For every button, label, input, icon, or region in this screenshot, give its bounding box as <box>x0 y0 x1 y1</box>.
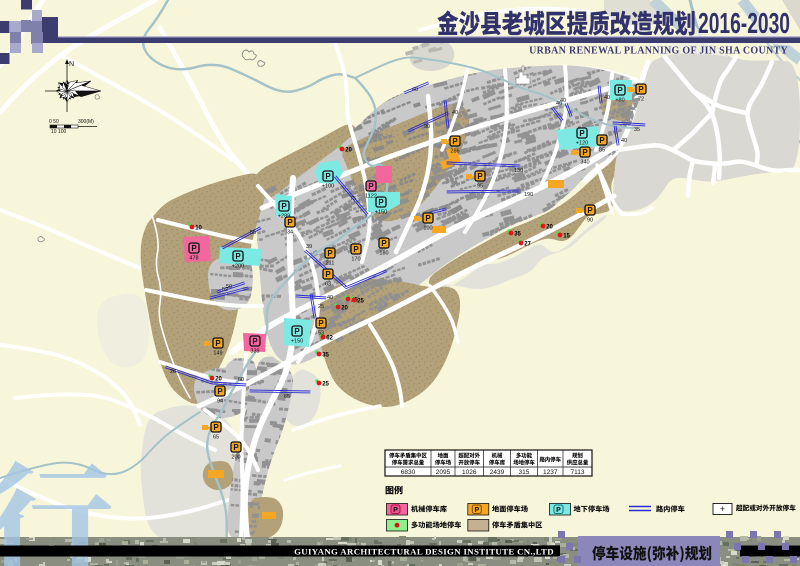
svg-text:P: P <box>233 443 239 452</box>
svg-text:300(M): 300(M) <box>78 119 94 125</box>
svg-text:GUIYANG ARCHITECTURAL DESIGN I: GUIYANG ARCHITECTURAL DESIGN INSTITUTE C… <box>294 547 554 557</box>
svg-text:P: P <box>452 137 458 146</box>
svg-text:P: P <box>474 507 479 514</box>
svg-text:340: 340 <box>580 160 589 166</box>
svg-text:286: 286 <box>450 149 459 155</box>
svg-text:63: 63 <box>325 282 331 288</box>
svg-text:+100: +100 <box>322 184 334 190</box>
svg-text:15: 15 <box>563 234 570 240</box>
svg-text:180: 180 <box>379 251 388 257</box>
svg-text:P: P <box>327 249 333 258</box>
svg-text:P: P <box>318 319 324 328</box>
svg-text:65: 65 <box>213 435 219 441</box>
svg-text:P: P <box>368 182 374 191</box>
svg-text:35: 35 <box>634 127 640 133</box>
svg-text:P: P <box>287 218 293 227</box>
svg-text:1026: 1026 <box>462 469 477 476</box>
svg-text:100: 100 <box>423 226 432 232</box>
svg-text:25: 25 <box>357 299 364 305</box>
svg-text:10: 10 <box>195 226 202 232</box>
svg-text:P: P <box>353 245 359 254</box>
svg-text:90: 90 <box>587 218 593 224</box>
svg-text:2016-2030: 2016-2030 <box>698 8 790 40</box>
svg-text:2439: 2439 <box>490 469 505 476</box>
svg-text:20: 20 <box>345 148 352 154</box>
svg-text:P: P <box>213 423 219 432</box>
svg-text:75: 75 <box>350 196 356 202</box>
svg-text:72: 72 <box>638 97 644 103</box>
svg-text:25: 25 <box>322 382 329 388</box>
svg-text:+200: +200 <box>232 264 244 270</box>
svg-text:P: P <box>425 214 431 223</box>
svg-text:35: 35 <box>514 232 521 238</box>
svg-text:P: P <box>393 507 398 514</box>
svg-text:P: P <box>378 198 384 207</box>
svg-text:+289: +289 <box>278 214 290 220</box>
svg-text:20: 20 <box>215 377 222 383</box>
svg-text:10 100: 10 100 <box>51 129 67 135</box>
svg-text:+150: +150 <box>291 339 303 345</box>
svg-text:35: 35 <box>322 353 329 359</box>
svg-text:1237: 1237 <box>543 469 558 476</box>
svg-text:P: P <box>235 252 241 261</box>
svg-text:P: P <box>325 270 331 279</box>
svg-text:P: P <box>579 129 585 138</box>
svg-text:55: 55 <box>250 230 256 236</box>
svg-text:94: 94 <box>217 399 223 405</box>
svg-text:40: 40 <box>621 138 627 144</box>
svg-text:P: P <box>217 387 223 396</box>
svg-text:39: 39 <box>306 244 312 250</box>
svg-text:40: 40 <box>452 110 458 116</box>
svg-text:P: P <box>191 244 197 253</box>
svg-text:7113: 7113 <box>571 469 585 476</box>
svg-text:URBAN RENEWAL PLANNING OF JIN: URBAN RENEWAL PLANNING OF JIN SHA COUNTY <box>529 46 788 57</box>
svg-text:P: P <box>477 172 483 181</box>
svg-text:25: 25 <box>318 304 324 310</box>
svg-text:0 50: 0 50 <box>49 119 59 125</box>
svg-text:P: P <box>281 202 287 211</box>
svg-text:P: P <box>587 206 593 215</box>
svg-text:+80: +80 <box>615 98 624 104</box>
svg-text:200: 200 <box>231 455 240 461</box>
svg-text:P: P <box>294 327 300 336</box>
svg-text:95: 95 <box>477 184 483 190</box>
svg-text:130: 130 <box>514 168 523 174</box>
svg-text:315: 315 <box>519 469 530 476</box>
svg-text:339: 339 <box>250 349 259 355</box>
svg-text:149: 149 <box>213 351 222 357</box>
svg-text:20: 20 <box>546 225 553 231</box>
svg-text:+120: +120 <box>576 141 588 147</box>
svg-text:P: P <box>215 339 221 348</box>
svg-text:P: P <box>617 86 623 95</box>
svg-text:27: 27 <box>524 242 531 248</box>
svg-text:53: 53 <box>318 331 324 337</box>
svg-text:90: 90 <box>424 124 430 130</box>
svg-text:1122: 1122 <box>365 194 377 200</box>
svg-text:85: 85 <box>599 148 605 154</box>
svg-text:P: P <box>381 239 387 248</box>
svg-text:170: 170 <box>351 257 360 263</box>
svg-text:2095: 2095 <box>436 469 451 476</box>
svg-text:60: 60 <box>238 377 244 383</box>
svg-text:40: 40 <box>560 98 566 104</box>
svg-text:190: 190 <box>524 192 533 198</box>
svg-text:211: 211 <box>326 261 335 267</box>
svg-text:28: 28 <box>170 369 176 375</box>
svg-text:P: P <box>556 507 561 514</box>
svg-text:P: P <box>582 148 588 157</box>
svg-text:6830: 6830 <box>401 469 416 476</box>
svg-text:+: + <box>720 504 725 514</box>
svg-text:P: P <box>599 136 605 145</box>
svg-text:P: P <box>252 337 258 346</box>
svg-text:34: 34 <box>287 230 293 236</box>
svg-text:P: P <box>638 85 644 94</box>
svg-text:40: 40 <box>604 95 610 101</box>
svg-text:20: 20 <box>341 306 348 312</box>
svg-text:40: 40 <box>327 295 333 301</box>
svg-text:52: 52 <box>222 287 228 293</box>
svg-text:+150: +150 <box>375 210 387 216</box>
svg-text:N: N <box>69 61 74 68</box>
svg-text:478: 478 <box>189 256 198 262</box>
svg-text:40: 40 <box>412 87 418 93</box>
svg-text:65: 65 <box>284 394 290 400</box>
svg-text:62: 62 <box>326 336 333 342</box>
svg-text:P: P <box>325 172 331 181</box>
